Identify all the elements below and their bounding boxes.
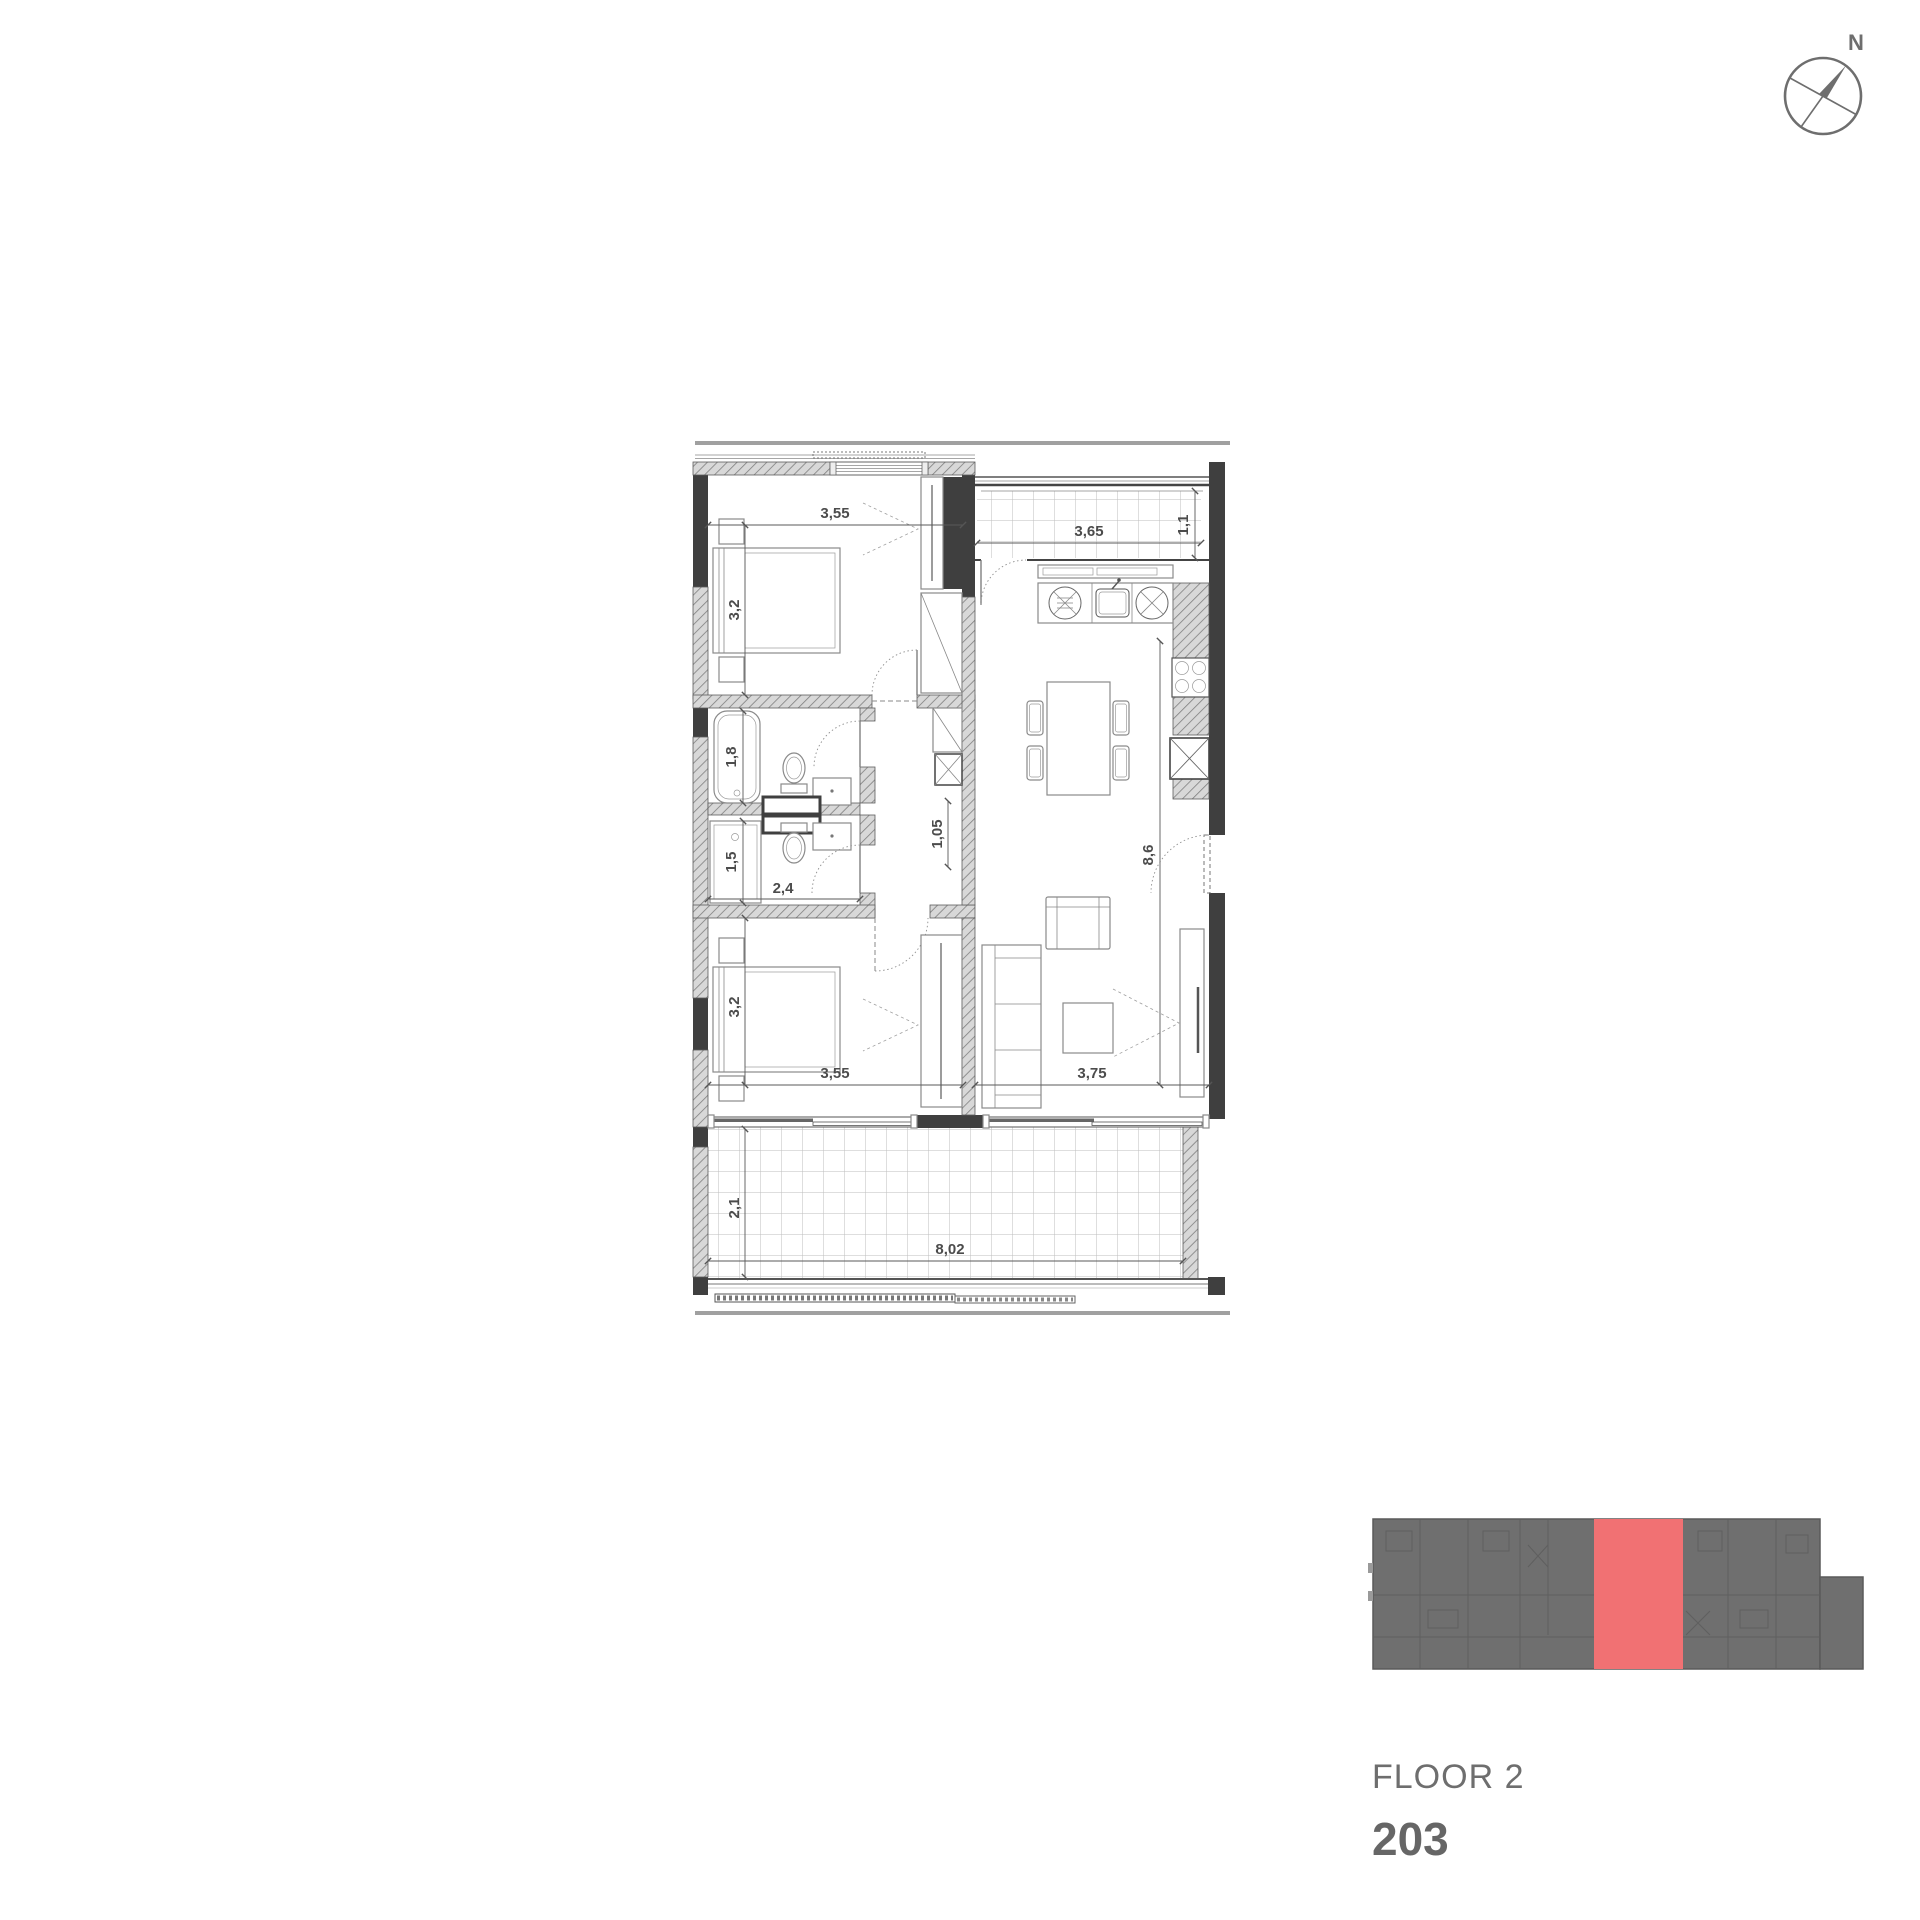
view-arrow-wardrobe1 — [863, 503, 918, 555]
nightstand — [719, 519, 744, 544]
floor-label: FLOOR 2 — [1372, 1758, 1524, 1797]
minimap-building-extension — [1820, 1577, 1863, 1669]
dim-bedroom1-depth: 3,2 — [726, 600, 743, 621]
hall-closet — [933, 708, 962, 752]
wardrobe-2 — [921, 935, 962, 1107]
wardrobe-1 — [921, 477, 943, 589]
compass-icon: N — [1768, 28, 1878, 148]
bathroom2-door — [812, 845, 860, 893]
dim-bedroom2-depth: 3,2 — [726, 997, 743, 1018]
bedroom1-door — [872, 650, 917, 701]
dim-terrace-depth: 2,1 — [726, 1198, 743, 1219]
bed-2 — [713, 967, 840, 1072]
dim-bedroom2-width: 3,55 — [820, 1065, 849, 1082]
toilet-2 — [781, 823, 807, 863]
dim-shower-length: 1,5 — [723, 852, 740, 873]
floor-plan: 3,55 3,2 3,65 1,1 1,8 1,5 2,4 1,05 8,6 3… — [655, 415, 1265, 1345]
shaft-hall — [935, 754, 962, 785]
nightstand — [719, 938, 744, 963]
compass-north-label: N — [1848, 30, 1864, 55]
unit-number: 203 — [1372, 1812, 1449, 1866]
bedroom1-window — [830, 462, 928, 475]
dim-terrace-width: 8,02 — [935, 1241, 964, 1258]
shaft-kitchen — [1170, 738, 1209, 779]
dim-bathtub-length: 1,8 — [723, 747, 740, 768]
sliding-door-bedroom2 — [708, 1115, 917, 1128]
tv-unit — [1180, 929, 1204, 1097]
cooktop — [1172, 658, 1209, 697]
kitchen-upper-cabinets — [1038, 565, 1173, 578]
dim-bath2-width: 2,4 — [773, 880, 795, 897]
building-minimap — [1368, 1515, 1868, 1675]
sliding-door-living — [983, 1115, 1209, 1128]
terrace-railing — [708, 1279, 1208, 1303]
bedroom2-door — [875, 918, 928, 971]
bathroom1-door — [814, 721, 860, 767]
dim-balcony-width: 3,65 — [1074, 523, 1103, 540]
dining-set — [1027, 682, 1129, 795]
closet-1 — [921, 593, 962, 693]
vanity-2 — [813, 823, 851, 850]
sofa — [982, 945, 1041, 1108]
dim-bedroom1-width: 3,55 — [820, 505, 849, 522]
dim-balcony-depth: 1,1 — [1175, 515, 1192, 536]
balcony-door — [981, 560, 1026, 605]
view-arrow-tv — [1113, 989, 1179, 1057]
armchair — [1046, 897, 1110, 949]
toilet-1 — [781, 753, 807, 793]
hallway — [933, 708, 962, 785]
compass-needle — [1820, 66, 1847, 99]
view-arrow-wardrobe2 — [863, 999, 918, 1051]
nightstand — [719, 657, 744, 682]
coffee-table — [1063, 1003, 1113, 1053]
minimap-highlight-unit — [1594, 1519, 1683, 1669]
dim-hall-width: 1,05 — [929, 819, 946, 848]
brochure-page: N — [0, 0, 1920, 1920]
dim-living-width: 3,75 — [1077, 1065, 1106, 1082]
nightstand — [719, 1076, 744, 1101]
dim-living-length: 8,6 — [1140, 845, 1157, 866]
dining-table — [1047, 682, 1110, 795]
